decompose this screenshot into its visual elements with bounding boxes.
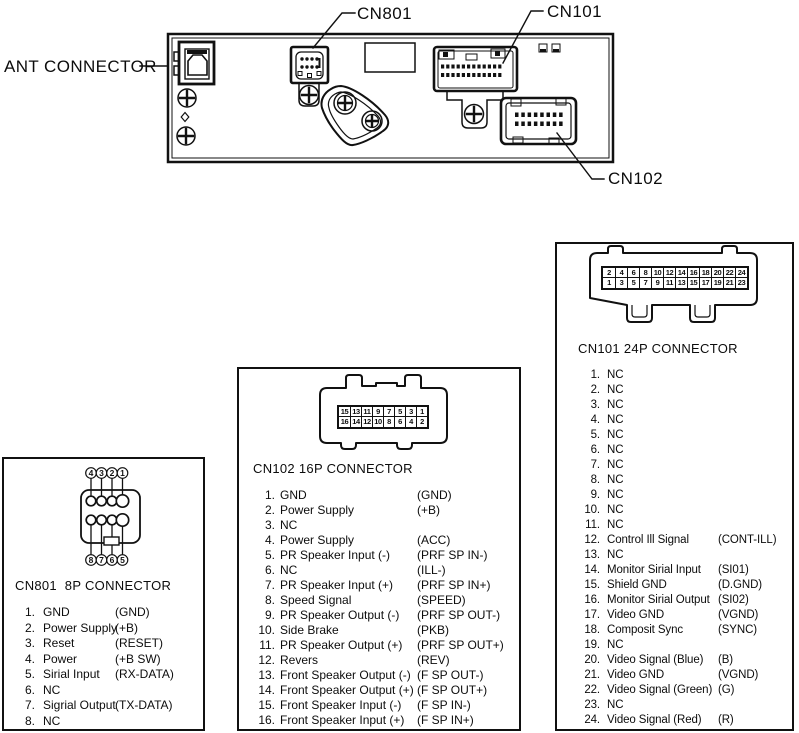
pin-name: Monitor Sirial Input bbox=[607, 563, 718, 578]
svg-text:8: 8 bbox=[89, 555, 94, 565]
pin-code: (PRF SP OUT-) bbox=[417, 608, 515, 623]
pin-name: Power Supply bbox=[280, 503, 417, 518]
pin-name: GND bbox=[280, 488, 417, 503]
pin-row: 15.Shield GND(D.GND) bbox=[577, 578, 790, 593]
pin-num: 15. bbox=[255, 698, 275, 713]
pin-number-cell: 10 bbox=[372, 417, 383, 427]
pin-num: 24. bbox=[577, 713, 600, 728]
pin-num: 7. bbox=[577, 458, 600, 473]
pin-num: 4. bbox=[577, 413, 600, 428]
pin-name: Front Speaker Input (-) bbox=[280, 698, 417, 713]
pin-name: NC bbox=[607, 383, 718, 398]
pin-name: NC bbox=[607, 473, 718, 488]
pin-row: 6.NC bbox=[577, 443, 790, 458]
pin-name: Monitor Sirial Output bbox=[607, 593, 718, 608]
pin-row: 9.PR Speaker Output (-)(PRF SP OUT-) bbox=[255, 608, 515, 623]
cn102-connector-drawing bbox=[501, 98, 576, 144]
svg-text:2: 2 bbox=[110, 468, 115, 478]
pin-code: (+B) bbox=[417, 503, 515, 518]
pin-row: 8.NC bbox=[18, 714, 201, 730]
pin-number-cell: 3 bbox=[405, 407, 416, 417]
cn102-title: CN102 16P CONNECTOR bbox=[253, 461, 413, 476]
pin-number-cell: 15 bbox=[687, 278, 699, 288]
pin-num: 23. bbox=[577, 698, 600, 713]
pin-number-cell: 20 bbox=[711, 268, 723, 278]
pin-name: NC bbox=[607, 458, 718, 473]
pin-row: 1.GND(GND) bbox=[18, 605, 201, 621]
pin-num: 6. bbox=[255, 563, 275, 578]
pin-row: 5.PR Speaker Input (-)(PRF SP IN-) bbox=[255, 548, 515, 563]
pin-code: (RX-DATA) bbox=[115, 667, 201, 683]
pin-num: 22. bbox=[577, 683, 600, 698]
screw-icon bbox=[178, 89, 196, 107]
pin-row: 4.NC bbox=[577, 413, 790, 428]
cn801-title: CN801 8P CONNECTOR bbox=[15, 578, 171, 593]
pin-code: (F SP IN+) bbox=[417, 713, 515, 728]
pin-number-cell: 16 bbox=[687, 268, 699, 278]
pin-name: Front Speaker Output (-) bbox=[280, 668, 417, 683]
pin-code: (+B SW) bbox=[115, 652, 201, 668]
pin-name: NC bbox=[607, 518, 718, 533]
pin-code: (SYNC) bbox=[718, 623, 790, 638]
pin-code: (PRF SP IN-) bbox=[417, 548, 515, 563]
pin-num: 6. bbox=[577, 443, 600, 458]
pin-name: NC bbox=[607, 428, 718, 443]
pin-num: 5. bbox=[255, 548, 275, 563]
pin-num: 17. bbox=[577, 608, 600, 623]
pin-number-cell: 9 bbox=[372, 407, 383, 417]
pin-code: (F SP OUT+) bbox=[417, 683, 515, 698]
pin-name: Revers bbox=[280, 653, 417, 668]
pin-number-cell: 7 bbox=[639, 278, 651, 288]
pin-num: 5. bbox=[18, 667, 35, 683]
svg-text:7: 7 bbox=[99, 555, 104, 565]
pin-name: NC bbox=[43, 714, 115, 730]
pin-code: (PRF SP IN+) bbox=[417, 578, 515, 593]
pin-name: GND bbox=[43, 605, 115, 621]
pin-number-cell: 19 bbox=[711, 278, 723, 288]
pin-code: (F SP OUT-) bbox=[417, 668, 515, 683]
pin-num: 3. bbox=[255, 518, 275, 533]
pin-row: 4.Power(+B SW) bbox=[18, 652, 201, 668]
pin-num: 13. bbox=[255, 668, 275, 683]
rear-panel-figure bbox=[0, 0, 799, 210]
pin-row: 8.NC bbox=[577, 473, 790, 488]
pin-num: 2. bbox=[577, 383, 600, 398]
pin-number-cell: 5 bbox=[394, 407, 405, 417]
pin-row: 10.NC bbox=[577, 503, 790, 518]
ant-connector-drawing bbox=[174, 42, 214, 84]
pin-code: (ILL-) bbox=[417, 563, 515, 578]
cn102-pin-number-grid: 15131197531161412108642 bbox=[337, 405, 429, 429]
pin-num: 3. bbox=[18, 636, 35, 652]
pin-num: 8. bbox=[255, 593, 275, 608]
pin-number-cell: 12 bbox=[663, 268, 675, 278]
pin-row: 5.NC bbox=[577, 428, 790, 443]
pin-number-cell: 5 bbox=[627, 278, 639, 288]
pin-number-cell: 21 bbox=[723, 278, 735, 288]
pin-number-cell: 2 bbox=[416, 417, 427, 427]
pin-row: 2.Power Supply(+B) bbox=[18, 621, 201, 637]
pin-code: (TX-DATA) bbox=[115, 698, 201, 714]
pin-number-cell: 4 bbox=[405, 417, 416, 427]
vent-cutout bbox=[365, 43, 415, 72]
pin-name: NC bbox=[607, 488, 718, 503]
pin-code: (ACC) bbox=[417, 533, 515, 548]
pin-num: 16. bbox=[577, 593, 600, 608]
pin-row: 7.NC bbox=[577, 458, 790, 473]
pin-num: 5. bbox=[577, 428, 600, 443]
cn101-pin-list: 1.NC2.NC3.NC4.NC5.NC6.NC7.NC8.NC9.NC10.N… bbox=[557, 368, 792, 728]
svg-text:3: 3 bbox=[99, 468, 104, 478]
cn801-connector-box: 4 3 2 1 8 7 6 5 CN801 8P CONNECTOR 1.GND… bbox=[2, 457, 205, 731]
pin-number-cell: 15 bbox=[339, 407, 350, 417]
pin-number-cell: 8 bbox=[383, 417, 394, 427]
pin-num: 11. bbox=[255, 638, 275, 653]
pin-name: NC bbox=[280, 518, 417, 533]
pin-num: 1. bbox=[18, 605, 35, 621]
pin-name: NC bbox=[607, 503, 718, 518]
pin-num: 11. bbox=[577, 518, 600, 533]
pin-row: 15.Front Speaker Input (-)(F SP IN-) bbox=[255, 698, 515, 713]
pin-row: 3.NC bbox=[577, 398, 790, 413]
pin-row: 4.Power Supply(ACC) bbox=[255, 533, 515, 548]
pin-name: NC bbox=[607, 698, 718, 713]
pin-row: 11.PR Speaker Output (+)(PRF SP OUT+) bbox=[255, 638, 515, 653]
pin-number-cell: 14 bbox=[675, 268, 687, 278]
pin-row: 23.NC bbox=[577, 698, 790, 713]
pin-number-cell: 2 bbox=[603, 268, 615, 278]
pin-num: 14. bbox=[577, 563, 600, 578]
pin-code: (VGND) bbox=[718, 608, 790, 623]
pin-number-cell: 4 bbox=[615, 268, 627, 278]
pin-name: NC bbox=[43, 683, 115, 699]
pin-name: Speed Signal bbox=[280, 593, 417, 608]
cn101-title: CN101 24P CONNECTOR bbox=[578, 341, 738, 356]
pin-number-cell: 11 bbox=[663, 278, 675, 288]
pin-num: 8. bbox=[18, 714, 35, 730]
pin-name: NC bbox=[607, 638, 718, 653]
pin-num: 12. bbox=[255, 653, 275, 668]
pin-code: (+B) bbox=[115, 621, 201, 637]
pin-number-cell: 11 bbox=[361, 407, 372, 417]
pin-row: 8.Speed Signal(SPEED) bbox=[255, 593, 515, 608]
pin-num: 13. bbox=[577, 548, 600, 563]
cn801-pin-list: 1.GND(GND)2.Power Supply(+B)3.Reset(RESE… bbox=[4, 605, 203, 729]
screw-icon bbox=[177, 127, 195, 145]
pin-row: 2.NC bbox=[577, 383, 790, 398]
pin-row: 2.Power Supply(+B) bbox=[255, 503, 515, 518]
pin-num: 19. bbox=[577, 638, 600, 653]
pin-row: 7.PR Speaker Input (+)(PRF SP IN+) bbox=[255, 578, 515, 593]
pin-code: (VGND) bbox=[718, 668, 790, 683]
pin-name: Side Brake bbox=[280, 623, 417, 638]
cn102-connector-box: 15131197531161412108642 CN102 16P CONNEC… bbox=[237, 367, 521, 731]
pin-row: 22.Video Signal (Green)(G) bbox=[577, 683, 790, 698]
screw-icon bbox=[334, 92, 356, 114]
pin-number-cell: 10 bbox=[651, 268, 663, 278]
pin-row: 16.Monitor Sirial Output(SI02) bbox=[577, 593, 790, 608]
pin-row: 3.Reset(RESET) bbox=[18, 636, 201, 652]
pin-name: PR Speaker Input (+) bbox=[280, 578, 417, 593]
pin-code: (RESET) bbox=[115, 636, 201, 652]
pin-row: 14.Monitor Sirial Input(SI01) bbox=[577, 563, 790, 578]
pin-name: Front Speaker Input (+) bbox=[280, 713, 417, 728]
pin-code: (SPEED) bbox=[417, 593, 515, 608]
pin-num: 6. bbox=[18, 683, 35, 699]
pin-num: 1. bbox=[577, 368, 600, 383]
pin-code: (PKB) bbox=[417, 623, 515, 638]
pin-name: Front Speaker Output (+) bbox=[280, 683, 417, 698]
pin-num: 7. bbox=[255, 578, 275, 593]
cn101-connector-box: 246810121416182022241357911131517192123 … bbox=[555, 242, 794, 731]
cn101-pin-number-grid: 246810121416182022241357911131517192123 bbox=[601, 266, 749, 290]
pin-row: 18.Composit Sync(SYNC) bbox=[577, 623, 790, 638]
pin-number-cell: 18 bbox=[699, 268, 711, 278]
pin-name: Sirial Input bbox=[43, 667, 115, 683]
screw-icon bbox=[362, 111, 382, 131]
pin-name: Video Signal (Red) bbox=[607, 713, 718, 728]
pin-number-cell: 13 bbox=[350, 407, 361, 417]
pin-name: Video Signal (Green) bbox=[607, 683, 718, 698]
pin-code: (REV) bbox=[417, 653, 515, 668]
pin-num: 2. bbox=[255, 503, 275, 518]
pin-num: 20. bbox=[577, 653, 600, 668]
cn102-label: CN102 bbox=[608, 169, 663, 189]
cn102-pin-list: 1.GND(GND)2.Power Supply(+B)3.NC4.Power … bbox=[239, 488, 519, 728]
pin-name: Video GND bbox=[607, 608, 718, 623]
pin-name: PR Speaker Output (-) bbox=[280, 608, 417, 623]
pin-number-cell: 1 bbox=[603, 278, 615, 288]
pin-number-cell: 12 bbox=[361, 417, 372, 427]
pin-row: 20.Video Signal (Blue)(B) bbox=[577, 653, 790, 668]
pin-number-cell: 7 bbox=[383, 407, 394, 417]
pinout-diagram-page: ANT CONNECTOR CN801 CN101 CN102 bbox=[0, 0, 799, 733]
pin-name: Power Supply bbox=[43, 621, 115, 637]
diamond-key-icon bbox=[181, 113, 189, 122]
ant-connector-label: ANT CONNECTOR bbox=[4, 57, 157, 77]
pin-row: 13.NC bbox=[577, 548, 790, 563]
pin-row: 16.Front Speaker Input (+)(F SP IN+) bbox=[255, 713, 515, 728]
pin-number-cell: 23 bbox=[735, 278, 747, 288]
leader-lines bbox=[140, 11, 604, 179]
pin-name: PR Speaker Input (-) bbox=[280, 548, 417, 563]
pin-code: (PRF SP OUT+) bbox=[417, 638, 515, 653]
pin-name: Power bbox=[43, 652, 115, 668]
pin-num: 12. bbox=[577, 533, 600, 548]
pin-name: Sigrial Output bbox=[43, 698, 115, 714]
pin-number-cell: 3 bbox=[615, 278, 627, 288]
pin-row: 9.NC bbox=[577, 488, 790, 503]
pin-number-cell: 13 bbox=[675, 278, 687, 288]
pin-name: Control Ill Signal bbox=[607, 533, 718, 548]
pin-row: 19.NC bbox=[577, 638, 790, 653]
pin-row: 7.Sigrial Output(TX-DATA) bbox=[18, 698, 201, 714]
pin-name: Reset bbox=[43, 636, 115, 652]
pin-code: (F SP IN-) bbox=[417, 698, 515, 713]
pin-name: Power Supply bbox=[280, 533, 417, 548]
pin-code: (SI01) bbox=[718, 563, 790, 578]
pin-row: 10.Side Brake(PKB) bbox=[255, 623, 515, 638]
pin-code: (CONT-ILL) bbox=[718, 533, 790, 548]
pin-num: 7. bbox=[18, 698, 35, 714]
pin-num: 8. bbox=[577, 473, 600, 488]
svg-text:6: 6 bbox=[110, 555, 115, 565]
pin-code: (GND) bbox=[417, 488, 515, 503]
pin-num: 3. bbox=[577, 398, 600, 413]
pin-name: NC bbox=[607, 368, 718, 383]
pin-name: Shield GND bbox=[607, 578, 718, 593]
pin-row: 13.Front Speaker Output (-)(F SP OUT-) bbox=[255, 668, 515, 683]
pin-name: NC bbox=[607, 398, 718, 413]
pin-code: (G) bbox=[718, 683, 790, 698]
pin-number-cell: 9 bbox=[651, 278, 663, 288]
pin-number-cell: 22 bbox=[723, 268, 735, 278]
pin-row: 6.NC bbox=[18, 683, 201, 699]
pin-name: NC bbox=[607, 548, 718, 563]
pin-number-cell: 6 bbox=[627, 268, 639, 278]
pin-num: 9. bbox=[255, 608, 275, 623]
svg-text:5: 5 bbox=[120, 555, 125, 565]
pin-row: 12.Revers(REV) bbox=[255, 653, 515, 668]
pin-code: (D.GND) bbox=[718, 578, 790, 593]
pin-row: 1.NC bbox=[577, 368, 790, 383]
svg-text:4: 4 bbox=[89, 468, 94, 478]
pin-num: 18. bbox=[577, 623, 600, 638]
pin-num: 1. bbox=[255, 488, 275, 503]
pin-code: (B) bbox=[718, 653, 790, 668]
pin-name: NC bbox=[280, 563, 417, 578]
pin-name: Video GND bbox=[607, 668, 718, 683]
pin-number-cell: 8 bbox=[639, 268, 651, 278]
pin-num: 15. bbox=[577, 578, 600, 593]
pin-row: 3.NC bbox=[255, 518, 515, 533]
pin-number-cell: 24 bbox=[735, 268, 747, 278]
pin-row: 21.Video GND(VGND) bbox=[577, 668, 790, 683]
pin-code: (R) bbox=[718, 713, 790, 728]
pin-num: 21. bbox=[577, 668, 600, 683]
pin-code: (SI02) bbox=[718, 593, 790, 608]
pin-num: 10. bbox=[577, 503, 600, 518]
pin-row: 1.GND(GND) bbox=[255, 488, 515, 503]
pin-row: 5.Sirial Input(RX-DATA) bbox=[18, 667, 201, 683]
pin-code: (GND) bbox=[115, 605, 201, 621]
pin-number-cell: 17 bbox=[699, 278, 711, 288]
pin-num: 10. bbox=[255, 623, 275, 638]
pin-num: 9. bbox=[577, 488, 600, 503]
pin-row: 12.Control Ill Signal(CONT-ILL) bbox=[577, 533, 790, 548]
pin-name: NC bbox=[607, 413, 718, 428]
cn101-label: CN101 bbox=[547, 2, 602, 22]
pin-name: PR Speaker Output (+) bbox=[280, 638, 417, 653]
pin-row: 6.NC(ILL-) bbox=[255, 563, 515, 578]
pin-number-cell: 1 bbox=[416, 407, 427, 417]
pin-num: 4. bbox=[18, 652, 35, 668]
pin-number-cell: 14 bbox=[350, 417, 361, 427]
pin-number-cell: 6 bbox=[394, 417, 405, 427]
pin-row: 17.Video GND(VGND) bbox=[577, 608, 790, 623]
pin-row: 24.Video Signal (Red)(R) bbox=[577, 713, 790, 728]
pin-num: 14. bbox=[255, 683, 275, 698]
pin-num: 4. bbox=[255, 533, 275, 548]
mount-boss-drawing bbox=[321, 86, 388, 145]
pin-name: NC bbox=[607, 443, 718, 458]
pin-row: 11.NC bbox=[577, 518, 790, 533]
pin-number-cell: 16 bbox=[339, 417, 350, 427]
pin-name: Composit Sync bbox=[607, 623, 718, 638]
pin-num: 16. bbox=[255, 713, 275, 728]
svg-text:1: 1 bbox=[120, 468, 125, 478]
pin-name: Video Signal (Blue) bbox=[607, 653, 718, 668]
pin-num: 2. bbox=[18, 621, 35, 637]
pin-row: 14.Front Speaker Output (+)(F SP OUT+) bbox=[255, 683, 515, 698]
cn101-pin-figure bbox=[557, 244, 792, 339]
cn801-label: CN801 bbox=[357, 4, 412, 24]
